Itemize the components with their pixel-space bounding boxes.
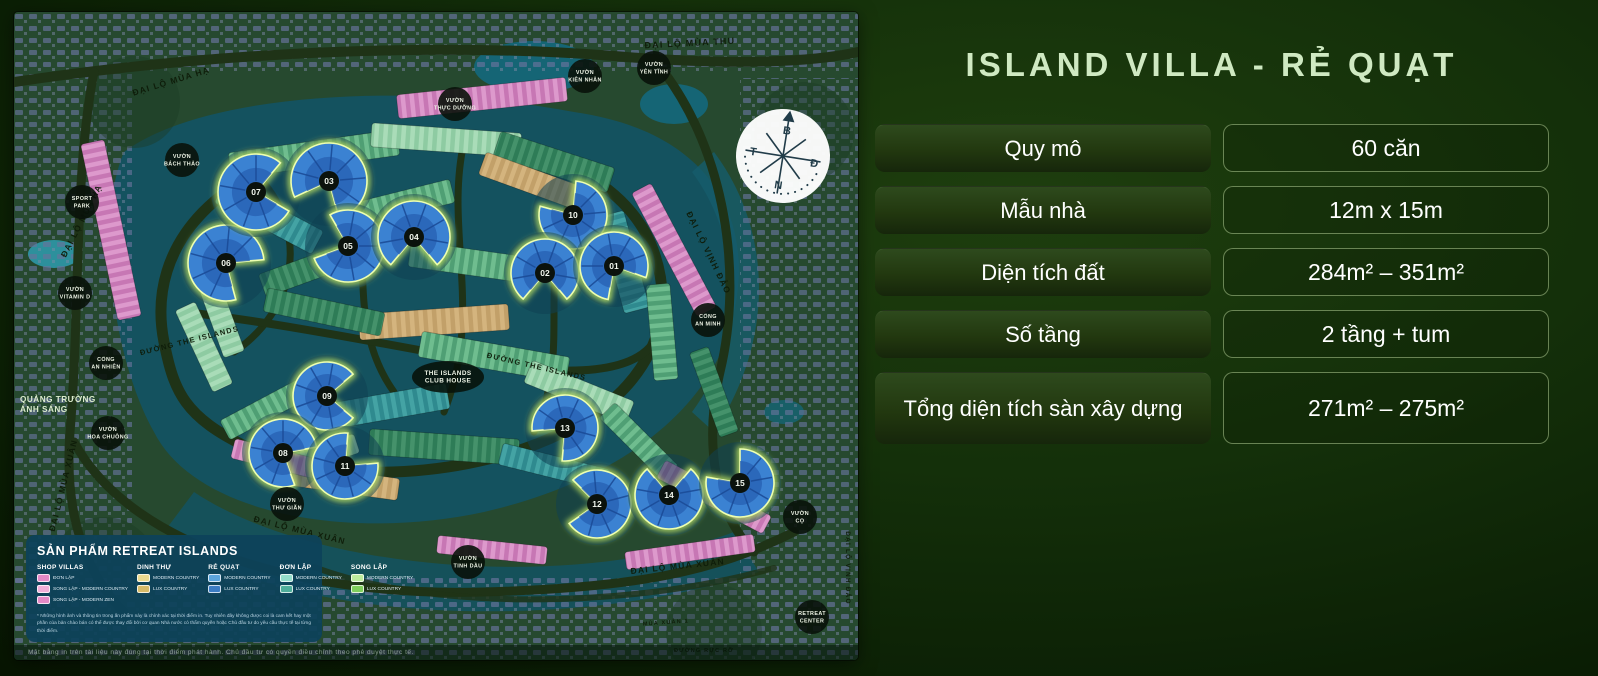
place-label: VƯỜNCỌ [783,500,817,534]
svg-text:CỔNG: CỔNG [97,356,115,363]
legend-item: ĐƠN LẬP [37,574,128,582]
fan-number: 02 [540,268,550,278]
legend-item-label: MODERN COUNTRY [224,576,270,581]
spec-row: Diện tích đất 284m² – 351m² [875,248,1549,296]
fan-number: 15 [735,478,745,488]
fan-number: 10 [568,210,578,220]
fan-number: 01 [609,261,619,271]
legend-item: LUX COUNTRY [208,585,270,593]
spec-label: Diện tích đất [875,248,1211,296]
spec-table: Quy mô 60 căn Mẫu nhà 12m x 15m Diện tíc… [875,124,1549,444]
place-label: VƯỜNKIÊN NHẪN [568,59,602,93]
fan-cluster-01: 01 [573,225,655,307]
svg-text:VƯỜN: VƯỜN [459,554,477,562]
svg-text:RETREAT: RETREAT [798,611,826,617]
svg-text:VƯỜN: VƯỜN [791,509,809,517]
spec-label: Quy mô [875,124,1211,172]
fan-cluster-04: 04 [371,194,457,280]
legend-title: SẢN PHẨM RETREAT ISLANDS [37,544,311,558]
place-label: CỔNGAN NHIÊN [89,346,123,380]
fan-number: 03 [324,176,334,186]
legend-swatch [351,585,364,593]
masterplan-map: 060703050410020109081113121415 ĐẠI LỘ MÙ… [14,12,858,660]
legend-item-label: SONG LẬP - MODERN ZEN [53,598,114,603]
legend-swatch [37,574,50,582]
legend-item: MODERN COUNTRY [137,574,199,582]
legend-swatch [37,585,50,593]
spec-label: Mẫu nhà [875,186,1211,234]
legend-swatch [137,585,150,593]
legend-item-label: LUX COUNTRY [296,587,330,592]
svg-text:THE ISLANDS: THE ISLANDS [424,370,471,377]
legend-item-label: MODERN COUNTRY [153,576,199,581]
spec-row: Mẫu nhà 12m x 15m [875,186,1549,234]
legend-item-label: MODERN COUNTRY [367,576,413,581]
svg-text:VƯỜN: VƯỜN [99,425,117,433]
spec-value: 271m² – 275m² [1223,372,1549,444]
fan-number: 14 [664,490,674,500]
fan-number: 04 [409,232,419,242]
legend-item: MODERN COUNTRY [280,574,342,582]
legend-item-label: LUX COUNTRY [153,587,187,592]
svg-text:CLUB HOUSE: CLUB HOUSE [425,378,472,385]
fan-number: 05 [343,241,353,251]
legend-item-label: LUX COUNTRY [367,587,401,592]
svg-text:CENTER: CENTER [800,619,825,625]
fan-number: 07 [251,187,261,197]
svg-text:VƯỜN: VƯỜN [446,96,464,104]
svg-text:ÁNH SÁNG: ÁNH SÁNG [20,404,68,414]
spec-label: Tổng diện tích sàn xây dựng [875,372,1211,444]
place-label: CỔNGAN MINH [691,303,725,337]
page-title: ISLAND VILLA - RẺ QUẠT [875,46,1548,84]
spec-row: Số tầng 2 tầng + tum [875,310,1549,358]
info-panel: ISLAND VILLA - RẺ QUẠT Quy mô 60 căn Mẫu… [872,0,1598,676]
spec-value: 284m² – 351m² [1223,248,1549,296]
legend-column-title: ĐƠN LẬP [280,564,342,571]
svg-text:VƯỜN: VƯỜN [66,285,84,293]
legend-item: MODERN COUNTRY [351,574,413,582]
legend-item: LUX COUNTRY [351,585,413,593]
legend-swatch [280,574,293,582]
svg-text:PARK: PARK [74,204,90,210]
legend-column-title: DINH THỰ [137,564,199,571]
svg-text:VƯỜN: VƯỜN [576,68,594,76]
spec-value: 12m x 15m [1223,186,1549,234]
place-label: VƯỜNTHƯ GIÃN [270,487,304,521]
fan-cluster-14: 14 [628,454,710,536]
legend-item: SONG LẬP - MODERN ZEN [37,596,128,604]
fan-cluster-12: 12 [556,463,638,545]
legend-footnote: * Những hình ảnh và thông tin trong ấn p… [37,613,311,635]
svg-text:YÊN TĨNH: YÊN TĨNH [640,68,668,76]
svg-text:VITAMIN D: VITAMIN D [60,295,91,301]
svg-text:VƯỜN: VƯỜN [173,152,191,160]
svg-text:AN NHIÊN: AN NHIÊN [91,363,120,371]
legend-item-label: SONG LẬP - MODERN COUNTRY [53,587,128,592]
map-legend: SẢN PHẨM RETREAT ISLANDS SHOP VILLASĐƠN … [26,535,322,642]
legend-column: ĐƠN LẬPMODERN COUNTRYLUX COUNTRY [280,564,342,607]
spec-value: 2 tầng + tum [1223,310,1549,358]
fan-number: 09 [322,391,332,401]
legend-item-label: LUX COUNTRY [224,587,258,592]
legend-item-label: MODERN COUNTRY [296,576,342,581]
map-bottom-note: Mặt bằng in trên tài liệu này đúng tại t… [14,645,858,660]
spec-row: Quy mô 60 căn [875,124,1549,172]
fan-cluster-13: 13 [525,388,605,468]
svg-text:SPORT: SPORT [72,196,93,202]
legend-column: RẺ QUẠTMODERN COUNTRYLUX COUNTRY [208,564,270,607]
fan-number: 11 [341,461,350,471]
legend-swatch [208,574,221,582]
svg-text:KIÊN NHẪN: KIÊN NHẪN [568,76,602,84]
legend-item: MODERN COUNTRY [208,574,270,582]
spec-label: Số tầng [875,310,1211,358]
fan-cluster-15: 15 [699,442,781,524]
fan-number: 12 [592,499,602,509]
place-label: VƯỜNYÊN TĨNH [637,51,671,85]
place-label: RETREATCENTER [795,600,829,634]
svg-text:QUẢNG TRƯỜNG: QUẢNG TRƯỜNG [20,393,96,404]
fan-number: 13 [560,423,570,433]
svg-text:CỌ: CỌ [796,519,805,525]
svg-text:THƯ GIÃN: THƯ GIÃN [272,505,302,512]
svg-text:AN MINH: AN MINH [695,322,721,328]
svg-text:CỔNG: CỔNG [699,313,717,320]
legend-swatch [208,585,221,593]
legend-item-label: ĐƠN LẬP [53,576,74,581]
legend-swatch [37,596,50,604]
legend-column: DINH THỰMODERN COUNTRYLUX COUNTRY [137,564,199,607]
legend-swatch [137,574,150,582]
fan-number: 06 [221,258,231,268]
svg-text:BÁCH THẢO: BÁCH THẢO [164,161,200,168]
fan-number: 08 [278,448,288,458]
legend-column: SHOP VILLASĐƠN LẬPSONG LẬP - MODERN COUN… [37,564,128,607]
svg-text:TINH DẦU: TINH DẦU [454,563,483,570]
legend-swatch [280,585,293,593]
road-label: ĐẠI LỘ VỊNH ĐẢO [844,531,853,605]
legend-swatch [351,574,364,582]
place-label: THE ISLANDSCLUB HOUSE [412,361,484,393]
svg-text:HOA CHUÔNG: HOA CHUÔNG [87,433,128,441]
svg-text:VƯỜN: VƯỜN [645,60,663,68]
legend-column-title: SONG LẬP [351,564,413,571]
fan-cluster-11: 11 [305,426,385,506]
legend-item: LUX COUNTRY [137,585,199,593]
svg-text:THỰC DƯỠNG: THỰC DƯỠNG [434,105,476,112]
spec-row: Tổng diện tích sàn xây dựng 271m² – 275m… [875,372,1549,444]
spec-value: 60 căn [1223,124,1549,172]
legend-column-title: SHOP VILLAS [37,564,128,571]
svg-text:VƯỜN: VƯỜN [278,496,296,504]
legend-item: SONG LẬP - MODERN COUNTRY [37,585,128,593]
legend-column: SONG LẬPMODERN COUNTRYLUX COUNTRY [351,564,413,607]
place-label: SPORTPARK [65,185,99,219]
page: 060703050410020109081113121415 ĐẠI LỘ MÙ… [0,0,1598,676]
place-label: VƯỜNVITAMIN D [58,276,92,310]
legend-item: LUX COUNTRY [280,585,342,593]
place-label: VƯỜNTINH DẦU [451,545,485,579]
legend-column-title: RẺ QUẠT [208,564,270,571]
